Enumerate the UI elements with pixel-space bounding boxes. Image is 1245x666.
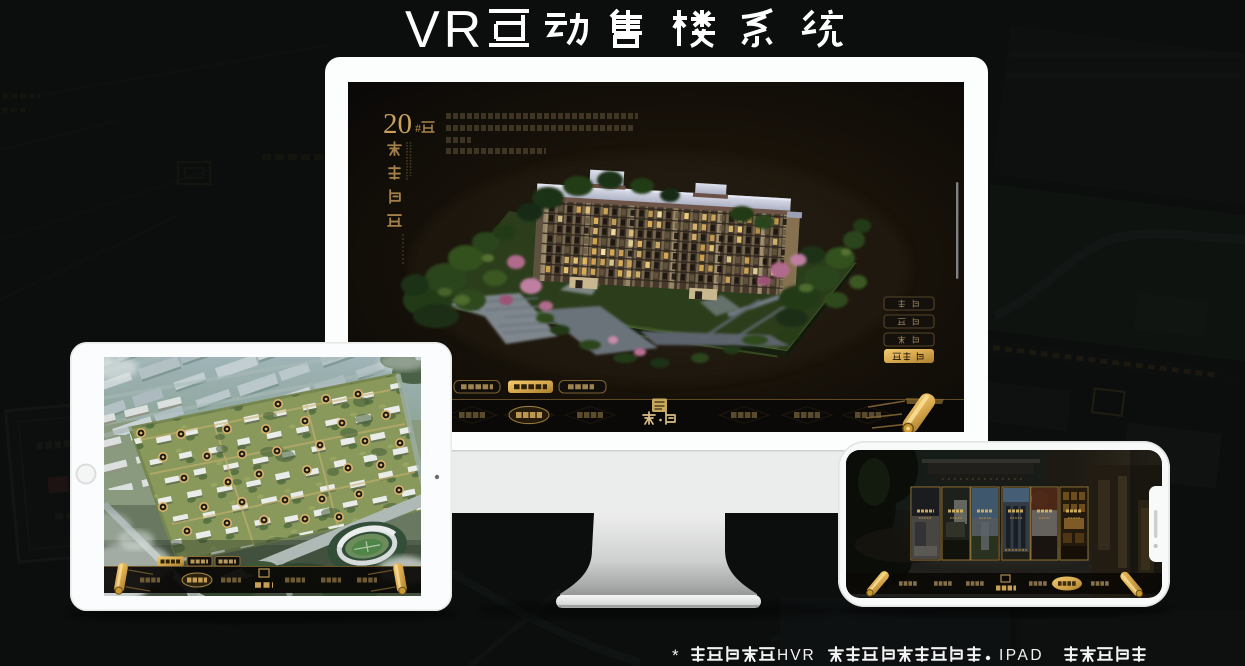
svg-text:IPAD: IPAD xyxy=(999,647,1044,664)
svg-text:*: * xyxy=(672,646,679,665)
svg-text:HVR: HVR xyxy=(777,647,816,664)
svg-text:VR: VR xyxy=(405,1,485,59)
svg-text:20: 20 xyxy=(383,108,412,140)
svg-text:#: # xyxy=(415,121,421,135)
